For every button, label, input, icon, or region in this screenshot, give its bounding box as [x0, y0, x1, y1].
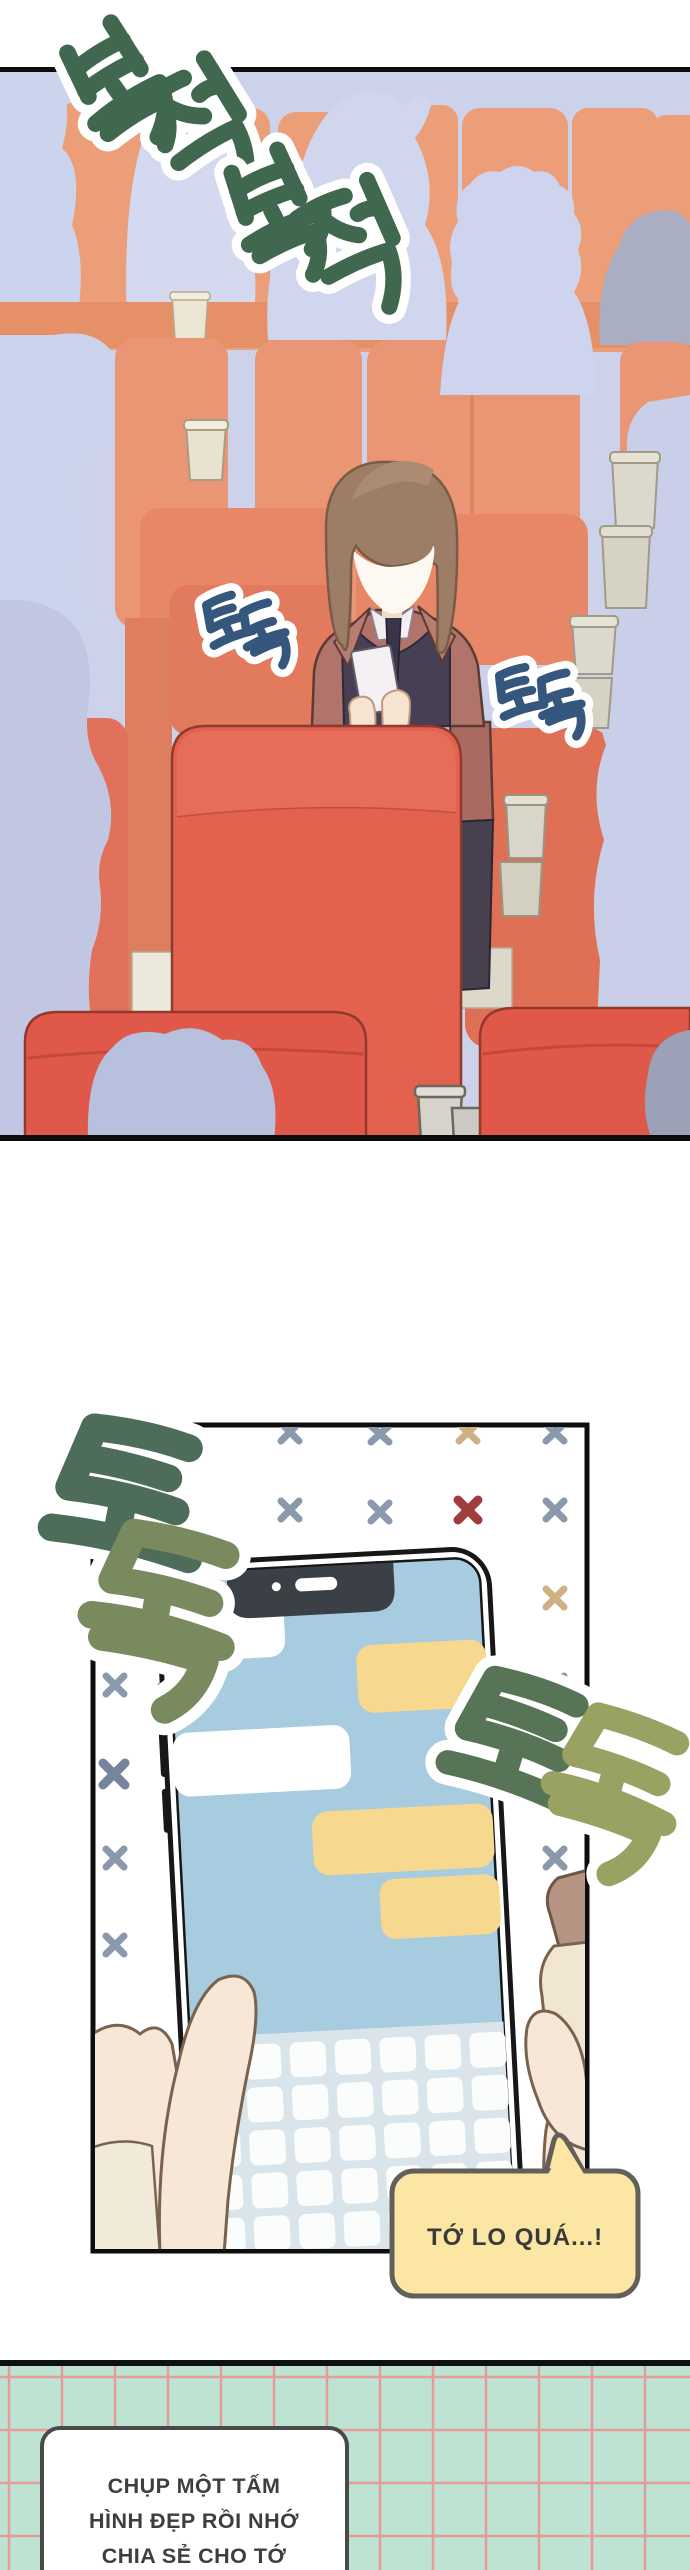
- svg-text:CHỤP MỘT TẤM: CHỤP MỘT TẤM: [108, 2473, 281, 2498]
- svg-text:TỚ LO QUÁ...!: TỚ LO QUÁ...!: [427, 2223, 603, 2251]
- svg-text:HÌNH ĐẸP RỒI NHỚ: HÌNH ĐẸP RỒI NHỚ: [89, 2508, 299, 2533]
- svg-text:CHIA SẺ CHO TỚ: CHIA SẺ CHO TỚ: [102, 2543, 287, 2568]
